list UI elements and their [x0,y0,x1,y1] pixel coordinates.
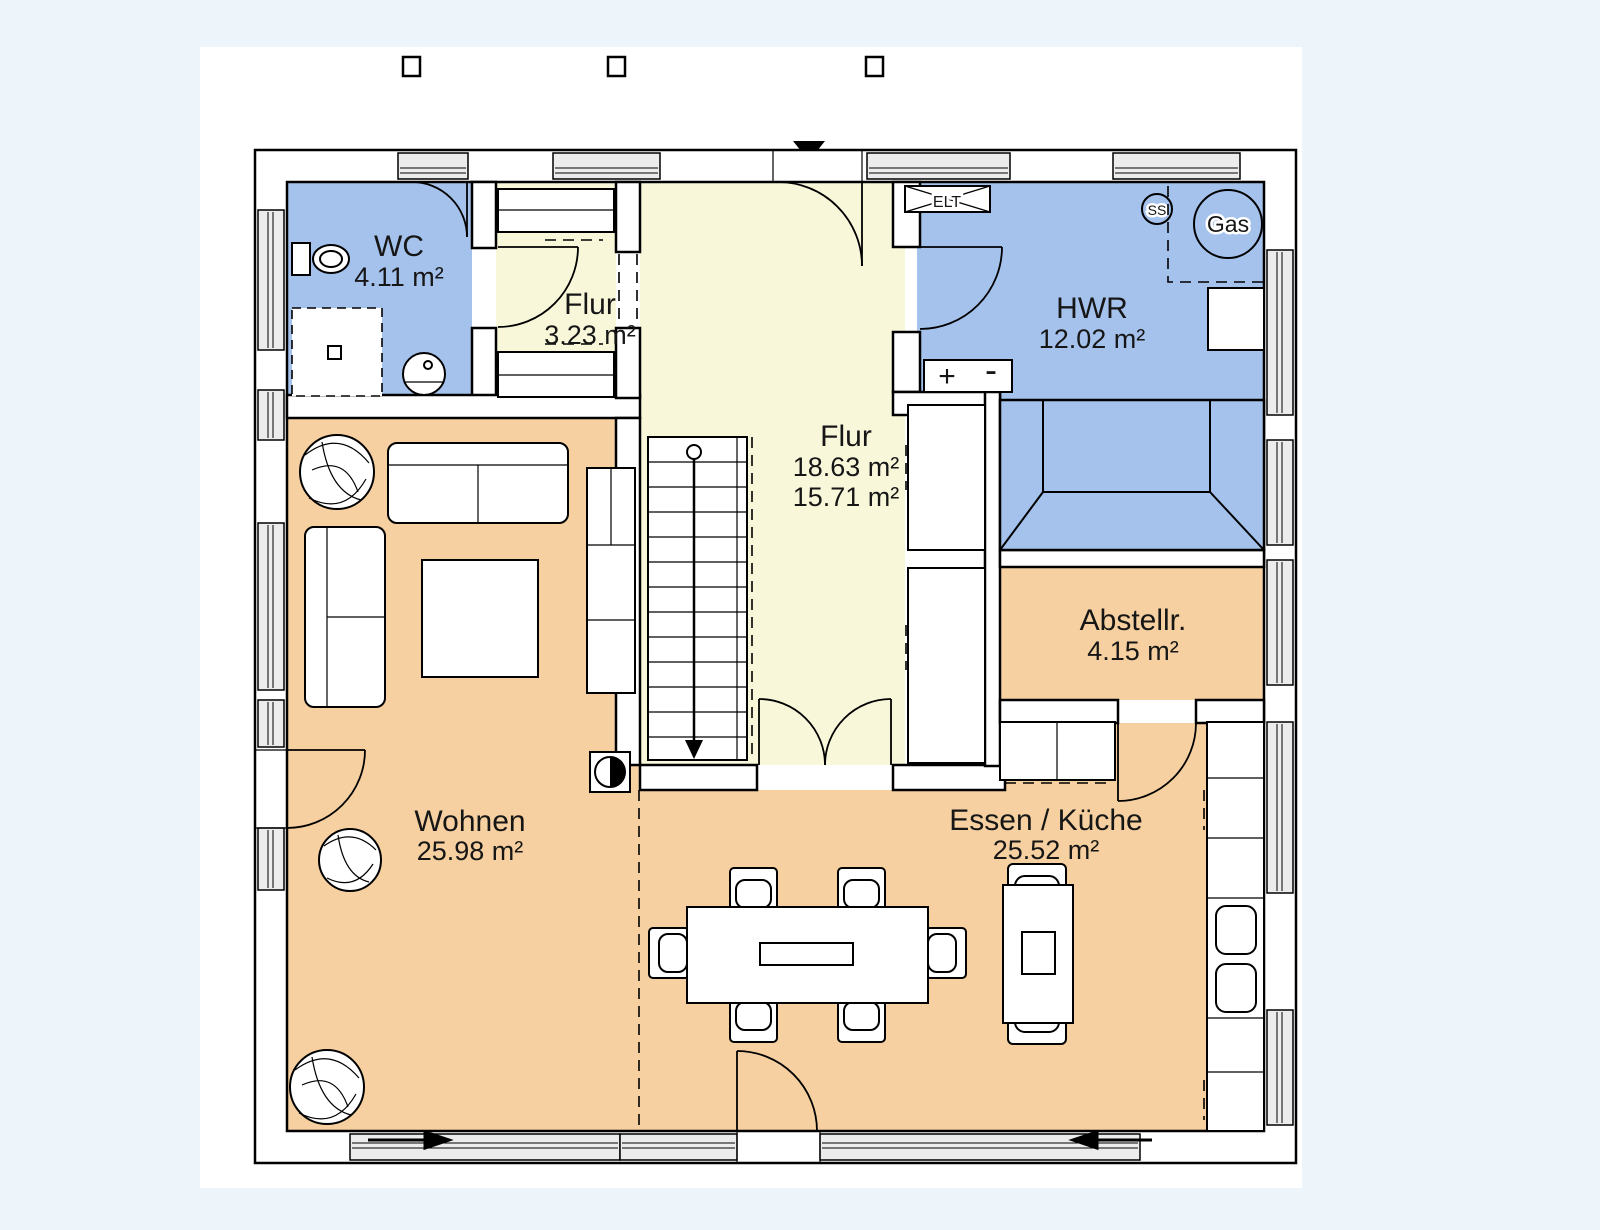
room-area-wc: 4.11 m² [354,262,444,292]
room-area-essen-kueche: 25.52 m² [993,835,1100,865]
room-area2-flur: 15.71 m² [793,482,900,512]
sofa-horizontal [388,443,568,523]
dining-chair [730,868,777,910]
elt-panel: ELT [905,186,990,212]
room-area-hwr: 12.02 m² [1039,324,1146,354]
dining-chair [926,928,966,978]
elt-label: ELT [933,194,961,211]
room-label-flur-klein: Flur [564,288,616,321]
room-area-wohnen: 25.98 m² [417,836,524,866]
gas-label: Gas [1207,211,1249,237]
room-area-abstellraum: 4.15 m² [1087,636,1179,666]
sofa-vertical [305,527,385,707]
dining-chair [838,868,885,910]
fireplace-stove-icon [590,752,630,792]
minus-label: - [985,349,997,390]
kitchen-island [1003,885,1073,1023]
coffee-table [422,560,538,677]
shower-icon [292,308,382,396]
room-label-essen-kueche: Essen / Küche [949,804,1142,837]
room-label-wc: WC [374,230,424,263]
dining-table [687,907,928,1003]
sideboard [587,468,635,693]
washer [1208,288,1264,350]
room-area-flur-klein: 3.23 m² [544,320,636,350]
staircase [648,437,752,760]
kitchen-counter-right [1204,722,1264,1131]
dining-chair [649,928,689,978]
ss-label: SS [1148,202,1167,218]
room-area-flur: 18.63 m² [793,452,900,482]
dining-chair [838,1000,885,1042]
plant-icon [290,1050,364,1124]
dining-chair [730,1000,777,1042]
flur-cabinets [906,405,985,763]
sink-basin [1216,906,1256,954]
toilet-icon [313,245,349,273]
kitchen-counter-top [1000,722,1115,783]
plant-icon [300,435,374,509]
plus-label: + [938,360,956,393]
room-label-hwr: HWR [1056,292,1128,325]
floor-plan: ELT SS Gas + - [0,0,1600,1230]
heat-pump-tank [1000,400,1264,550]
sink-basin [1216,964,1256,1012]
room-label-wohnen: Wohnen [414,805,525,838]
sink-icon [403,353,445,395]
room-label-flur: Flur [820,420,872,453]
plant-icon [319,829,381,891]
toilet-tank [292,243,310,275]
room-label-abstellraum: Abstellr. [1080,604,1187,637]
